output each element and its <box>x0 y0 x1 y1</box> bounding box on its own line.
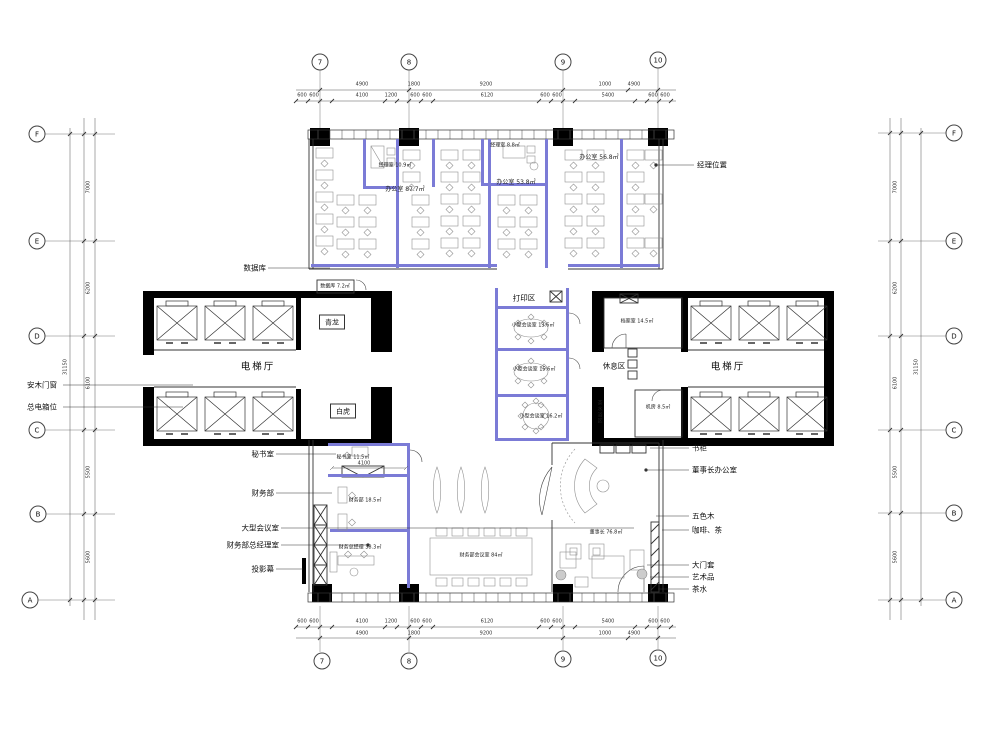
dim-text: 7000 <box>87 181 92 194</box>
dim-text: 600 <box>552 620 562 625</box>
annotation-database: 数据库 <box>244 264 267 272</box>
annotation-finance-gm-office: 财务部总经理室 <box>227 541 280 549</box>
label-open-office-east: 办公室 56.8㎡ <box>579 155 618 161</box>
annotation-door-frame: 大门套 <box>692 561 715 569</box>
label-elevator-hall-east: 电梯厅 <box>711 362 746 372</box>
annotation-projection-screen: 投影幕 <box>252 565 275 573</box>
label-tea-shower-area: 茶水浴区 <box>597 400 602 424</box>
annotation-artwork: 艺术品 <box>692 573 715 581</box>
plan-linework <box>0 0 985 739</box>
grid-bubble-left-b: B <box>30 506 47 523</box>
dim-text: 6100 <box>894 377 899 390</box>
grid-bubble-left-d: D <box>29 328 46 345</box>
annotation-bookcase: 书柜 <box>692 444 707 452</box>
dim-text: 4900 <box>356 83 369 88</box>
elevator-shaft <box>205 392 245 434</box>
label-print-area: 打印区 <box>513 294 536 302</box>
annotation-five-color-wood: 五色木 <box>692 512 715 520</box>
dim-text: 6200 <box>894 282 899 295</box>
label-secretary-room: 秘书室 11.5㎡ <box>337 456 370 461</box>
dim-text: 1200 <box>385 620 398 625</box>
dim-text: 600 <box>309 620 319 625</box>
elevator-shaft <box>253 301 293 343</box>
grid-bubble-left-c: C <box>29 422 46 439</box>
dim-text: 1200 <box>385 94 398 99</box>
elevator-shaft <box>739 392 779 434</box>
dim-text: 7000 <box>894 181 899 194</box>
dim-text: 4900 <box>628 83 641 88</box>
elevator-shaft <box>205 301 245 343</box>
dim-text: 6100 <box>87 377 92 390</box>
dim-text: 600 <box>422 94 432 99</box>
grid-bubble-right-e: E <box>946 233 963 250</box>
dim-text: 1800 <box>408 83 421 88</box>
grid-label: F <box>952 129 956 137</box>
dim-text: 600 <box>660 620 670 625</box>
dim-text: 9200 <box>480 632 493 637</box>
label-finance-dept-room: 财务部 18.5㎡ <box>349 499 382 504</box>
grid-label: F <box>35 130 39 138</box>
label-chairman-room: 董事长 76.8㎡ <box>590 531 623 536</box>
label-manager-room-1: 经理室 10.9㎡ <box>379 164 412 169</box>
grid-label: B <box>952 509 957 517</box>
annotation-chairman-office: 董事长办公室 <box>692 466 737 474</box>
label-elevator-hall-west: 电梯厅 <box>241 362 276 372</box>
grid-label: A <box>952 596 957 604</box>
grid-bubble-right-d: D <box>946 328 963 345</box>
dim-text: 5600 <box>894 551 899 564</box>
label-open-office-mid: 办公室 53.8㎡ <box>496 180 535 186</box>
grid-bubble-left-f: F <box>29 126 46 143</box>
dim-text: 600 <box>410 94 420 99</box>
label-database-room: 数据库 7.2㎡ <box>320 285 350 290</box>
grid-label: 8 <box>407 657 411 665</box>
grid-label: D <box>951 332 956 340</box>
grid-bubble-bottom-8: 8 <box>401 653 418 670</box>
annotation-manager-position: 经理位置 <box>697 161 727 169</box>
dim-text: 600 <box>309 94 319 99</box>
grid-label: 10 <box>654 56 663 64</box>
annotation-tea-water: 茶水 <box>692 585 707 593</box>
elevator-shaft <box>691 301 731 343</box>
label-machine-room: 机房 8.5㎡ <box>646 406 671 411</box>
annotation-finance-dept: 财务部 <box>252 489 275 497</box>
grid-label: B <box>36 510 41 518</box>
dim-text: 600 <box>660 94 670 99</box>
elevator-shaft <box>739 301 779 343</box>
label-qinglong: 青龙 <box>319 315 345 330</box>
grid-bubble-bottom-9: 9 <box>555 651 572 668</box>
dim-text: 4900 <box>628 632 641 637</box>
grid-bubble-bottom-7: 7 <box>314 653 331 670</box>
label-small-meeting-2: 小型会谈室 15.6㎡ <box>513 368 556 373</box>
label-archive-room: 档案室 14.5㎡ <box>621 320 654 325</box>
dim-text: 9200 <box>480 83 493 88</box>
elevator-shaft <box>253 392 293 434</box>
annotation-wood-doors: 安木门窗 <box>27 381 57 389</box>
label-finance-gm-room: 财务总经理 38.3㎡ <box>339 546 382 551</box>
grid-label: D <box>34 332 39 340</box>
grid-bubble-left-e: E <box>29 233 46 250</box>
label-manager-room-2: 经理室 8.8㎡ <box>490 144 520 149</box>
dim-text-total: 31150 <box>64 359 69 375</box>
grid-bubble-top-7: 7 <box>312 54 329 71</box>
grid-bubble-top-9: 9 <box>555 54 572 71</box>
dim-text: 5500 <box>894 466 899 479</box>
dim-text: 600 <box>552 94 562 99</box>
dim-text: 600 <box>648 94 658 99</box>
label-conference-room: 财务部会议室 84㎡ <box>460 554 503 559</box>
grid-label: C <box>35 426 40 434</box>
grid-label: A <box>28 596 33 604</box>
dim-text: 600 <box>648 620 658 625</box>
dim-text: 4900 <box>356 632 369 637</box>
dim-text: 1000 <box>599 632 612 637</box>
dim-text: 4100 <box>358 462 371 467</box>
grid-bubble-top-8: 8 <box>401 54 418 71</box>
dim-text: 1800 <box>408 632 421 637</box>
label-baihu: 白虎 <box>330 404 356 419</box>
dim-text: 600 <box>540 620 550 625</box>
dim-text: 6200 <box>87 282 92 295</box>
dim-text: 5600 <box>87 551 92 564</box>
label-open-office-west: 办公室 87.7㎡ <box>385 187 424 193</box>
label-rest-area: 休息区 <box>603 362 626 370</box>
grid-bubble-right-c: C <box>946 422 963 439</box>
annotation-secretary-room: 秘书室 <box>252 450 275 458</box>
dim-text: 5400 <box>602 620 615 625</box>
grid-label: 10 <box>654 654 663 662</box>
grid-label: 9 <box>561 655 565 663</box>
grid-bubble-left-a: A <box>22 592 39 609</box>
annotation-coffee-tea: 咖啡、茶 <box>692 526 722 534</box>
elevator-shaft <box>691 392 731 434</box>
grid-label: 7 <box>318 58 322 66</box>
grid-label: 9 <box>561 58 565 66</box>
dim-text: 6120 <box>481 94 494 99</box>
grid-bubble-top-10: 10 <box>650 52 667 69</box>
grid-lines <box>38 68 946 652</box>
annotation-main-electric-box: 总电箱位 <box>27 403 57 411</box>
leader-lines <box>63 164 694 589</box>
floor-plan: 7 8 9 10 7 8 9 10 F E D C B A F E D C B … <box>0 0 985 739</box>
elevator-shaft <box>787 301 827 343</box>
dim-text: 600 <box>297 620 307 625</box>
dim-text: 5400 <box>602 94 615 99</box>
dim-text: 600 <box>540 94 550 99</box>
dim-text-total: 31150 <box>915 359 920 375</box>
label-small-meeting-1: 小型会谈室 13.6㎡ <box>512 324 555 329</box>
elevator-shaft <box>787 392 827 434</box>
dim-text: 6120 <box>481 620 494 625</box>
grid-label: E <box>35 237 39 245</box>
dim-text: 4100 <box>356 620 369 625</box>
dim-text: 5500 <box>87 466 92 479</box>
dim-text: 600 <box>422 620 432 625</box>
grid-label: 8 <box>407 58 411 66</box>
grid-label: E <box>952 237 956 245</box>
grid-bubble-right-a: A <box>946 592 963 609</box>
dim-text: 600 <box>410 620 420 625</box>
doors <box>356 280 663 592</box>
dim-text: 1000 <box>599 83 612 88</box>
elevator-shaft <box>157 301 197 343</box>
dim-text: 600 <box>297 94 307 99</box>
grid-bubble-right-f: F <box>946 125 963 142</box>
dim-text: 4100 <box>356 94 369 99</box>
label-small-meeting-3: 小型会谈室 16.2㎡ <box>520 415 563 420</box>
grid-label: C <box>952 426 957 434</box>
annotation-large-conference: 大型会议室 <box>242 524 280 532</box>
grid-bubble-right-b: B <box>946 505 963 522</box>
grid-label: 7 <box>320 657 324 665</box>
grid-bubble-bottom-10: 10 <box>650 650 667 667</box>
elevator-shaft <box>157 392 197 434</box>
